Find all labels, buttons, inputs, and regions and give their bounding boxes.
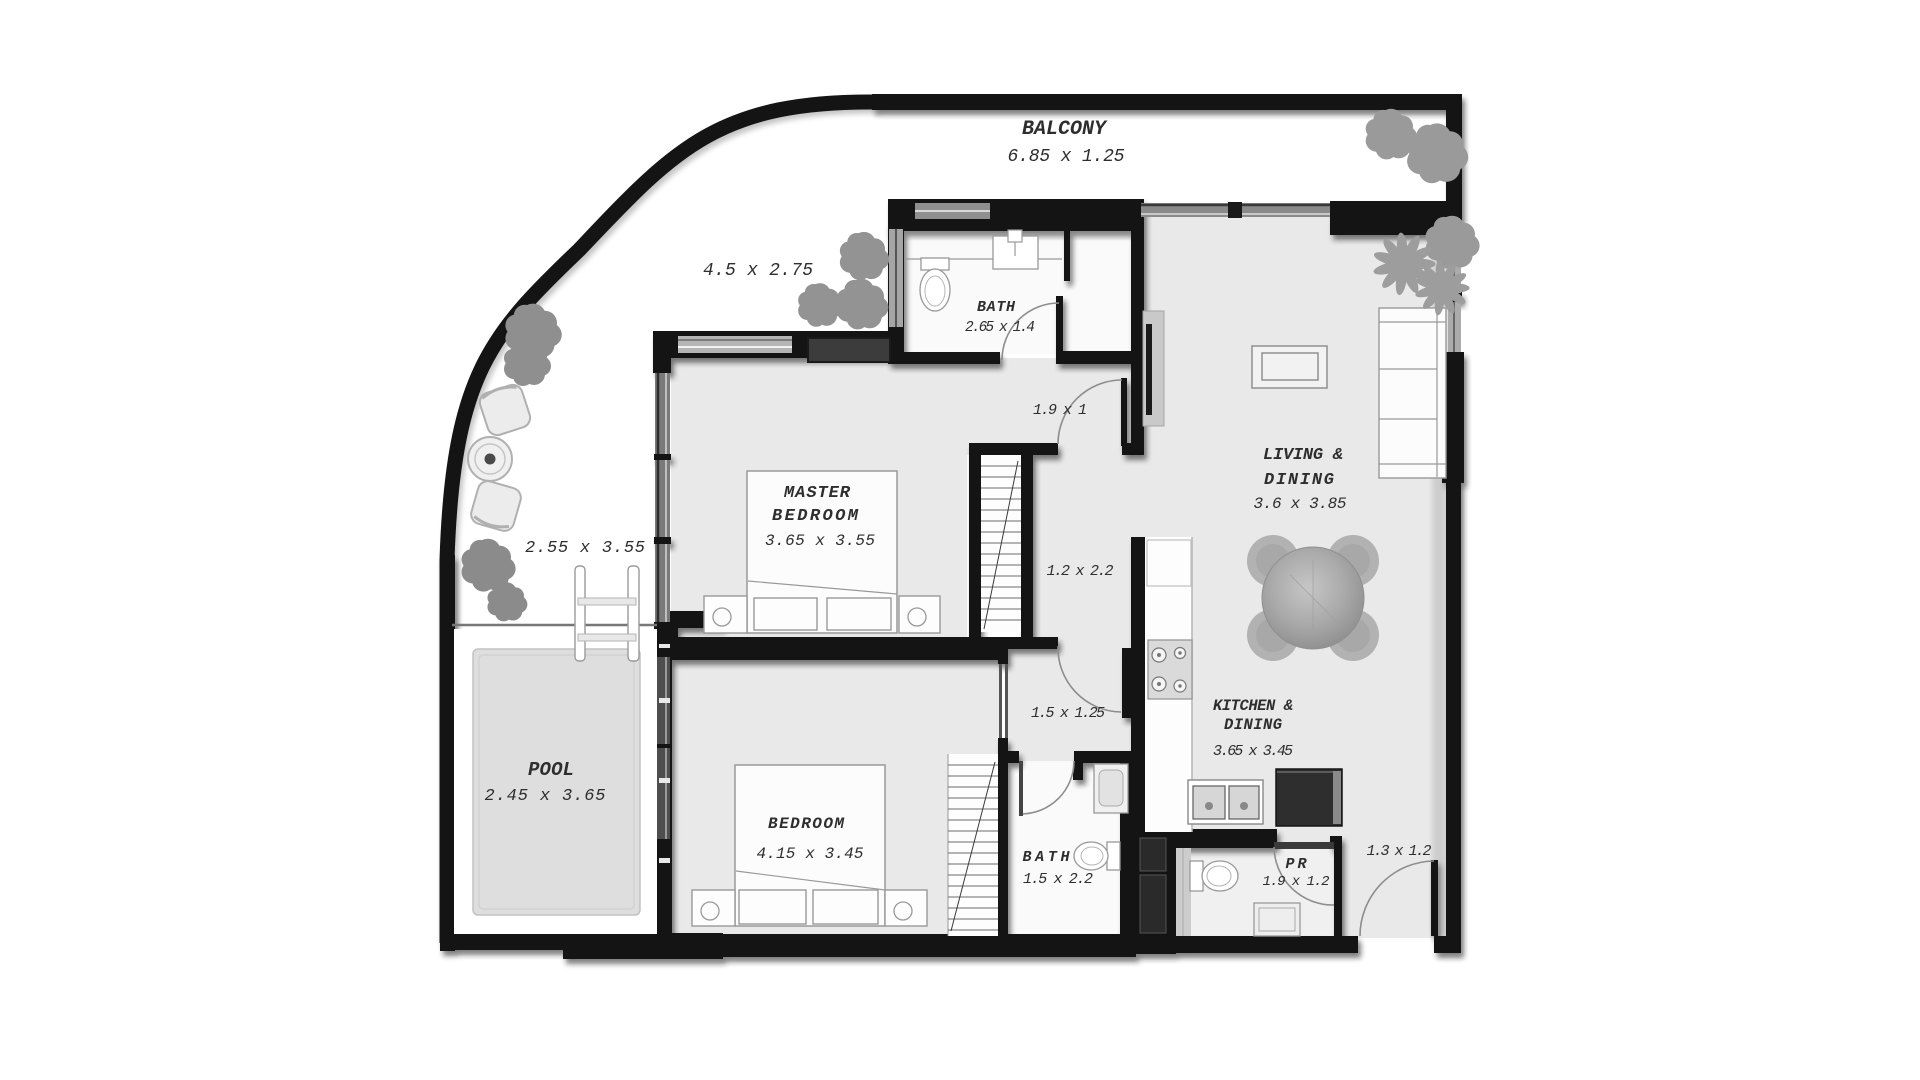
svg-text:1.9 x 1: 1.9 x 1 <box>1033 402 1087 419</box>
svg-text:DINING: DINING <box>1224 716 1282 734</box>
svg-text:BALCONY: BALCONY <box>1022 118 1108 141</box>
svg-text:KITCHEN &: KITCHEN & <box>1213 697 1293 715</box>
svg-text:LIVING &: LIVING & <box>1263 446 1343 465</box>
svg-text:2.55 x 3.55: 2.55 x 3.55 <box>525 539 645 558</box>
svg-text:1.9 x 1.2: 1.9 x 1.2 <box>1263 874 1330 890</box>
svg-text:POOL: POOL <box>528 759 574 781</box>
svg-text:6.85 x 1.25: 6.85 x 1.25 <box>1008 147 1125 167</box>
svg-text:MASTER: MASTER <box>783 484 851 503</box>
svg-text:BATH: BATH <box>977 299 1016 316</box>
svg-text:4.5 x 2.75: 4.5 x 2.75 <box>703 261 813 281</box>
svg-text:1.5 x 1.25: 1.5 x 1.25 <box>1031 705 1105 722</box>
svg-text:2.65 x 1.4: 2.65 x 1.4 <box>965 320 1035 336</box>
svg-text:3.65 x 3.45: 3.65 x 3.45 <box>1213 743 1293 760</box>
svg-text:3.65 x 3.55: 3.65 x 3.55 <box>765 532 875 550</box>
svg-text:2.45 x 3.65: 2.45 x 3.65 <box>485 787 606 806</box>
svg-text:1.2 x 2.2: 1.2 x 2.2 <box>1047 563 1114 580</box>
svg-text:1.5 x 2.2: 1.5 x 2.2 <box>1023 871 1093 888</box>
svg-text:1.3 x 1.2: 1.3 x 1.2 <box>1367 843 1432 860</box>
svg-text:BEDROOM: BEDROOM <box>768 815 845 833</box>
svg-text:3.6 x 3.85: 3.6 x 3.85 <box>1254 495 1347 513</box>
svg-text:4.15 x 3.45: 4.15 x 3.45 <box>757 845 864 863</box>
